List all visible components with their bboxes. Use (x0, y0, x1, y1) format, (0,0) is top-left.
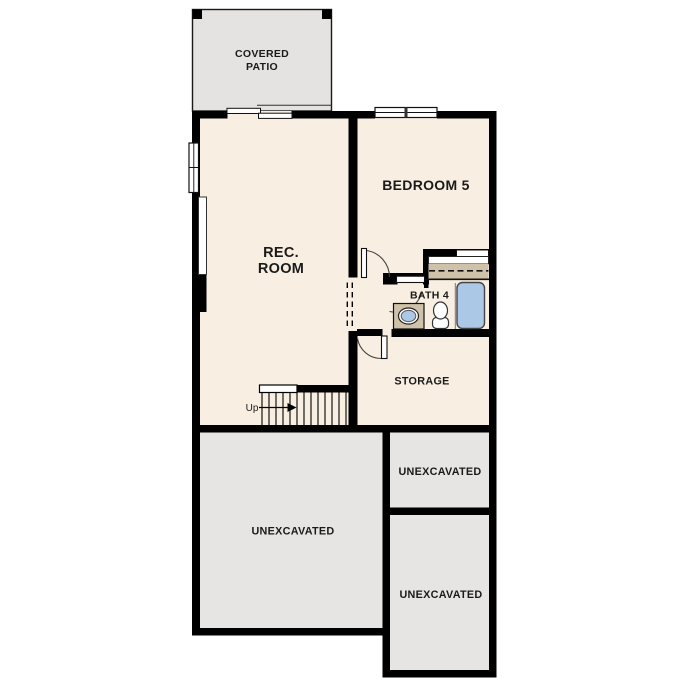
window-bedroom-mullion (405, 108, 408, 118)
wall-top-right (437, 111, 497, 119)
storage-door-leaf-icon (382, 336, 388, 359)
sink-basin-icon (401, 310, 416, 321)
bath-door-jamb (424, 283, 429, 289)
covered-patio-label-line2: PATIO (246, 61, 278, 73)
bathtub-icon (457, 283, 485, 329)
stairs-up-label: Up (246, 403, 259, 414)
wall-recroom-storage-divider (349, 331, 358, 425)
wall-unexcavated-left-bottom (192, 628, 390, 636)
bedroom-5-label: BEDROOM 5 (382, 177, 470, 193)
floor-plan-page: COVERED PATIO REC. ROOM BEDROOM 5 BATH 4… (0, 0, 687, 687)
unexcavated-left-label: UNEXCAVATED (251, 526, 334, 538)
wall-unexcavated-bottom (383, 670, 497, 678)
storage-label: STORAGE (394, 376, 449, 388)
patio-post-left (193, 10, 203, 20)
rec-room-label-line2: ROOM (258, 261, 304, 277)
wall-floor-bottom (192, 425, 497, 433)
wall-right (489, 111, 497, 678)
wall-unexcavated-divider-vertical (383, 425, 391, 678)
covered-patio-label-line1: COVERED (235, 48, 289, 60)
rec-room-label-line1: REC. (263, 245, 299, 261)
bath-door-leaf-icon (397, 276, 425, 282)
patio-post-right (322, 10, 332, 20)
closet-shelf-icon (429, 257, 489, 265)
sliding-door-panel-left-icon (227, 108, 261, 113)
wall-stairs (297, 385, 357, 393)
sliding-door-panel-right-icon (259, 113, 293, 118)
closet-opening-icon (457, 250, 489, 257)
wall-bath-top-stub (383, 273, 398, 285)
bedroom-door-leaf-icon (362, 249, 367, 278)
floor-plan-drawing: COVERED PATIO REC. ROOM BEDROOM 5 BATH 4… (0, 0, 687, 687)
unexcavated-top-right-label: UNEXCAVATED (398, 466, 481, 478)
bath-4-label: BATH 4 (410, 290, 449, 302)
wall-unexcavated-divider-horizontal (390, 508, 497, 516)
stair-handrail-icon (260, 385, 298, 393)
window-well-panel-icon (199, 197, 207, 275)
toilet-bowl-icon (434, 302, 448, 319)
wall-bath-door-header (396, 273, 425, 276)
wall-bath-bottom-right (392, 329, 491, 337)
wall-top-middle (292, 111, 376, 119)
wall-bath-bottom-left (357, 329, 383, 336)
wall-recroom-bedroom-divider (349, 119, 358, 278)
wall-left-pier (200, 275, 207, 313)
unexcavated-bottom-right-label: UNEXCAVATED (399, 589, 482, 601)
